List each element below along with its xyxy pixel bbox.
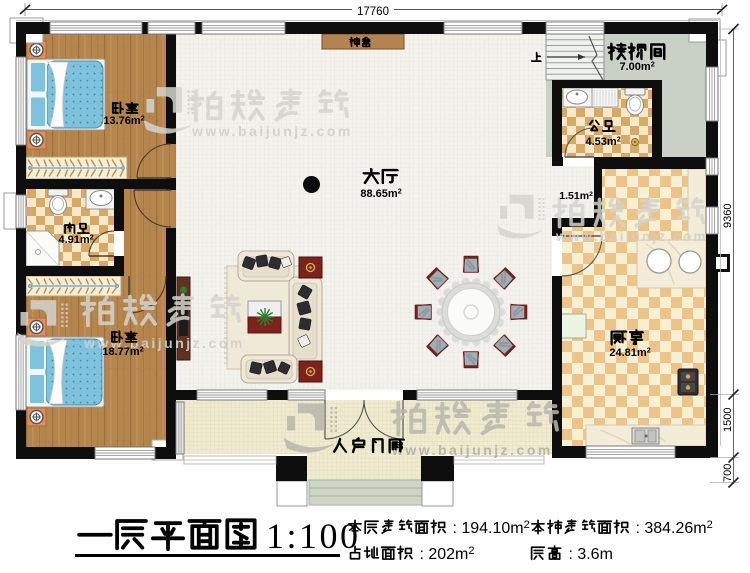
svg-text:13.76m2: 13.76m2 [103,114,144,127]
svg-text:1.51m2: 1.51m2 [559,190,593,202]
svg-text:17760: 17760 [357,6,389,18]
svg-text:88.65m2: 88.65m2 [360,187,401,200]
svg-text:7.00m2: 7.00m2 [620,60,655,73]
svg-text:: 202m2: : 202m2 [415,545,474,563]
svg-text:www.baijunjz.com: www.baijunjz.com [391,442,553,458]
svg-text:4.91m2: 4.91m2 [59,233,94,246]
svg-text:24.81m2: 24.81m2 [609,346,650,359]
svg-text:9360: 9360 [722,204,734,228]
svg-text:700: 700 [722,464,734,482]
svg-text:www.baijunjz.com: www.baijunjz.com [555,229,708,244]
svg-text:4.53m2: 4.53m2 [586,135,621,148]
svg-text:18.77m2: 18.77m2 [102,345,143,358]
svg-text:: 194.10m2: : 194.10m2 [448,519,530,537]
svg-text:: 3.6m: : 3.6m [564,546,613,563]
svg-text:1500: 1500 [722,408,734,432]
svg-text:: 384.26m2: : 384.26m2 [631,519,713,537]
svg-text:www.baijunjz.com: www.baijunjz.com [191,123,353,139]
svg-text:1:100: 1:100 [266,516,361,556]
